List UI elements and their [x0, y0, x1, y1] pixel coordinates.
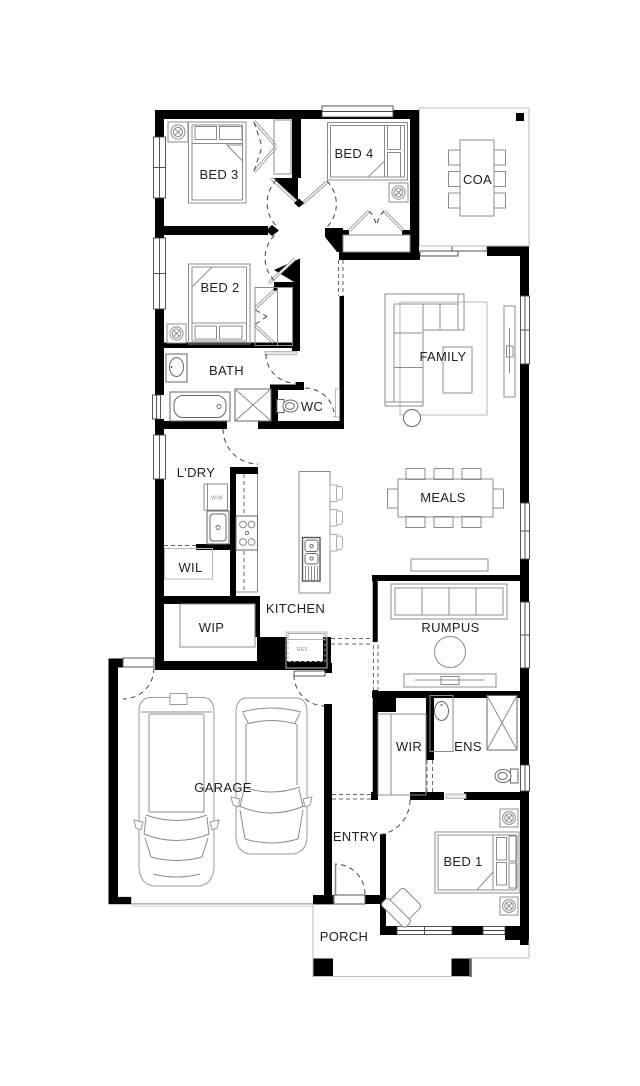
- svg-text:WIL: WIL: [178, 560, 202, 575]
- svg-text:W/M: W/M: [211, 496, 223, 502]
- svg-text:PORCH: PORCH: [320, 929, 368, 944]
- svg-text:KITCHEN: KITCHEN: [266, 601, 325, 616]
- svg-text:BED 4: BED 4: [334, 146, 373, 161]
- svg-text:BED 2: BED 2: [200, 280, 239, 295]
- svg-text:GARAGE: GARAGE: [194, 780, 251, 795]
- svg-text:MEALS: MEALS: [420, 490, 466, 505]
- svg-text:ENTRY: ENTRY: [333, 829, 378, 844]
- svg-text:ENS: ENS: [454, 739, 482, 754]
- svg-text:WC: WC: [301, 399, 323, 414]
- svg-text:WIR: WIR: [396, 739, 422, 754]
- svg-text:L'DRY: L'DRY: [177, 465, 215, 480]
- svg-text:BED 1: BED 1: [443, 854, 482, 869]
- svg-text:BATH: BATH: [209, 363, 244, 378]
- svg-text:BED 3: BED 3: [199, 167, 238, 182]
- svg-text:WIP: WIP: [199, 620, 224, 635]
- svg-text:RUMPUS: RUMPUS: [421, 620, 479, 635]
- svg-text:REF: REF: [297, 647, 309, 653]
- svg-text:COA: COA: [463, 172, 492, 187]
- svg-text:FAMILY: FAMILY: [419, 349, 466, 364]
